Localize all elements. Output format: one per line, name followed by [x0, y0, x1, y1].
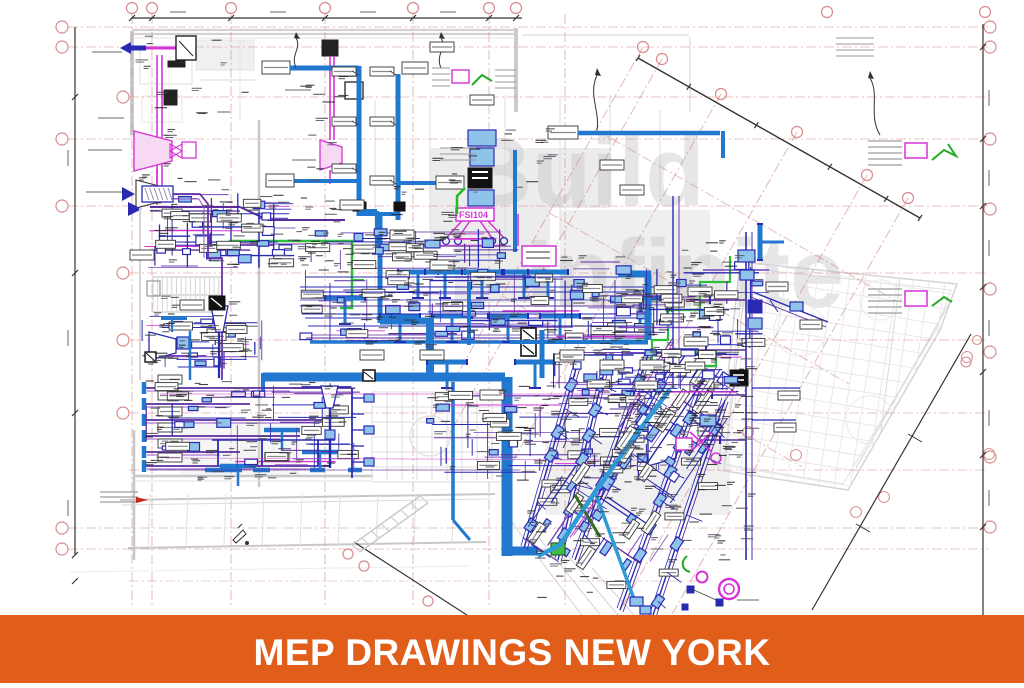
svg-text:FSI104: FSI104 [459, 210, 488, 220]
